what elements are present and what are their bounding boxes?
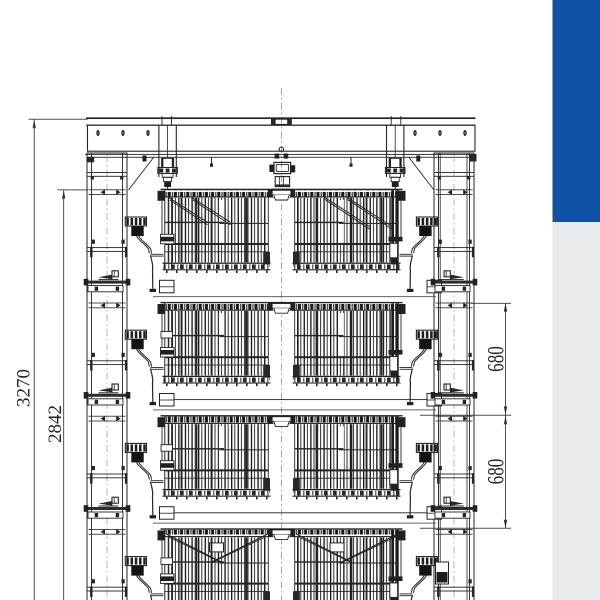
svg-text:2842: 2842 — [45, 405, 66, 443]
svg-text:3270: 3270 — [14, 369, 35, 407]
svg-text:680: 680 — [484, 346, 509, 372]
svg-text:680: 680 — [484, 459, 509, 485]
